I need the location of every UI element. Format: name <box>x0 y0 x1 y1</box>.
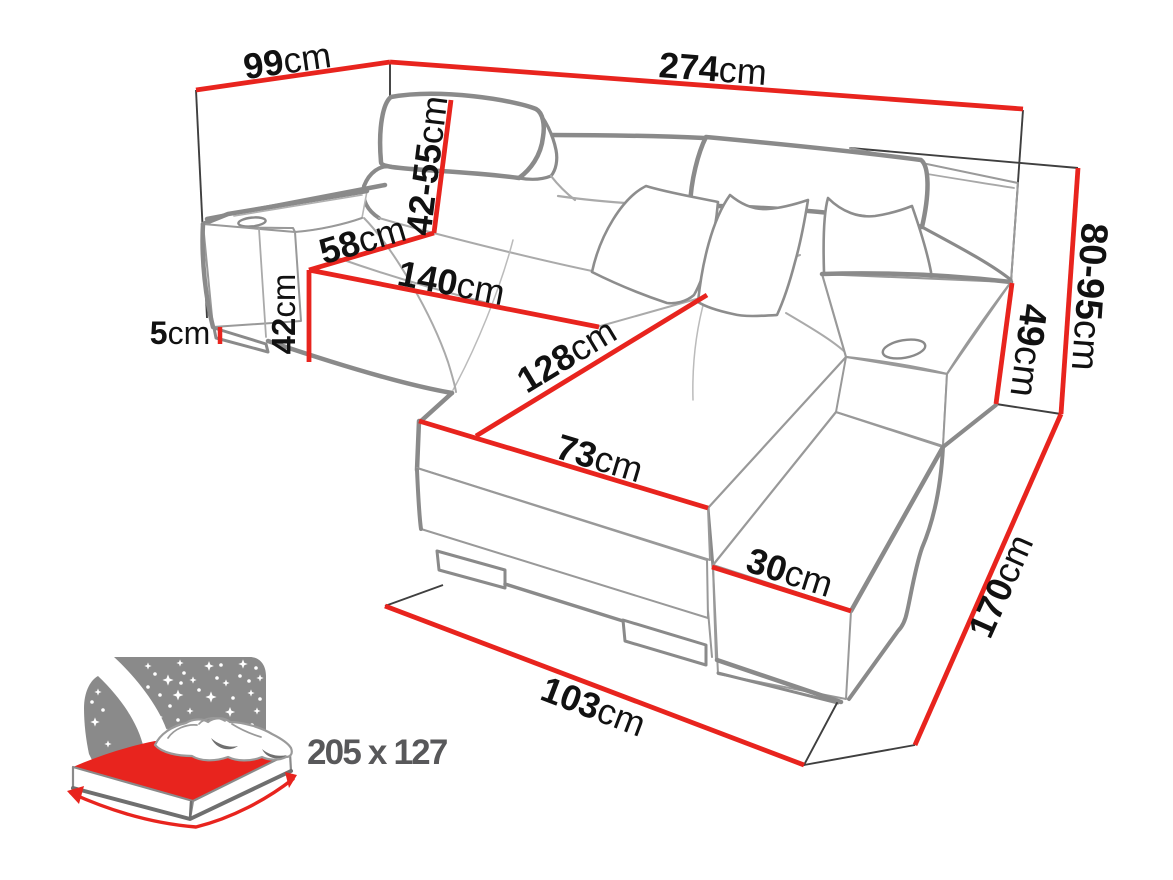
svg-text:5cm: 5cm <box>150 315 210 351</box>
svg-text:205 x 127: 205 x 127 <box>307 733 447 772</box>
svg-text:42cm: 42cm <box>265 274 302 355</box>
svg-text:274cm: 274cm <box>658 44 769 93</box>
